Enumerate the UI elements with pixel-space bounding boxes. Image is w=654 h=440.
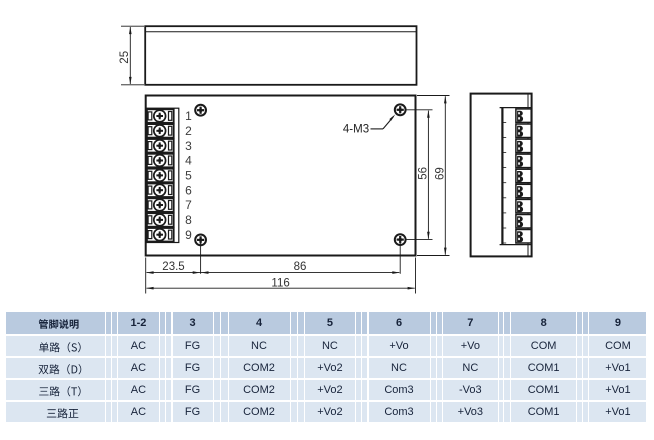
svg-text:5: 5	[185, 169, 192, 183]
svg-text:7: 7	[185, 198, 192, 212]
svg-text:116: 116	[271, 277, 289, 289]
svg-text:2: 2	[185, 124, 192, 138]
svg-text:69: 69	[435, 167, 447, 180]
svg-text:4: 4	[185, 154, 192, 168]
svg-text:6: 6	[185, 183, 192, 197]
svg-text:1: 1	[185, 109, 192, 123]
svg-text:9: 9	[185, 228, 192, 242]
svg-text:4-M3: 4-M3	[343, 123, 369, 135]
svg-text:23.5: 23.5	[162, 261, 184, 273]
svg-text:56: 56	[417, 167, 429, 180]
svg-text:8: 8	[185, 213, 192, 227]
svg-text:86: 86	[294, 261, 307, 273]
svg-text:25: 25	[119, 51, 131, 64]
svg-text:3: 3	[185, 139, 192, 153]
